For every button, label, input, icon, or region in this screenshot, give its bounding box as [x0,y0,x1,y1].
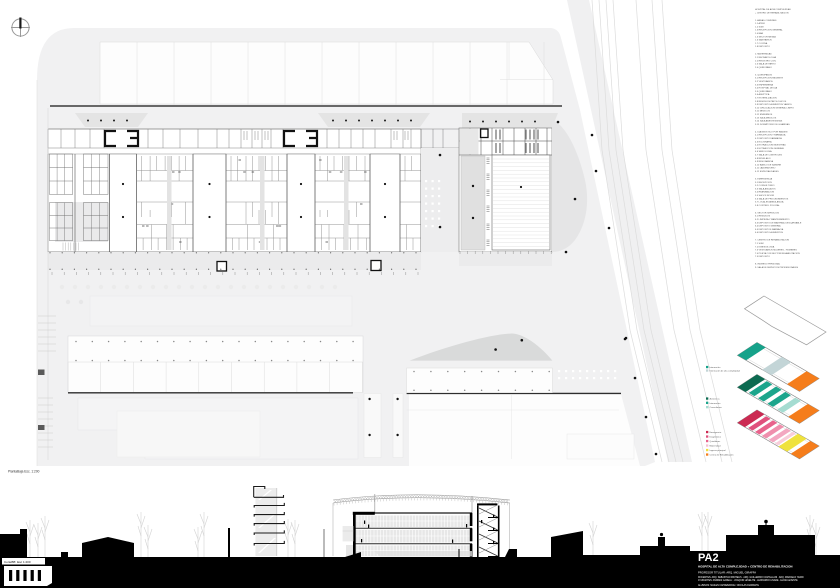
svg-text:Quirófanos: Quirófanos [710,440,722,443]
svg-text:4. DIAGNOSTICO POR IMAGEN: 4. DIAGNOSTICO POR IMAGEN [755,130,788,133]
svg-text:2. MATERNIDAD: 2. MATERNIDAD [755,53,772,56]
svg-text:4.1 RECEPCION Y FARMACIA: 4.1 RECEPCION Y FARMACIA [755,134,786,137]
svg-text:3.7 ESTERILIZACION: 3.7 ESTERILIZACION [755,97,777,100]
svg-text:6.6 DEPOSITO ALIMENTOS: 6.6 DEPOSITO ALIMENTOS [755,231,784,234]
svg-text:5.4 REANIMACION: 5.4 REANIMACION [755,191,775,194]
svg-text:8. INGRESO PERSONAL: 8. INGRESO PERSONAL [755,263,781,266]
svg-text:PROFESOR TITULAR: ARQ. MIGUEL: PROFESOR TITULAR: ARQ. MIGUEL GIRAFFA [698,571,756,575]
svg-text:Ingreso principal: Ingreso principal [710,449,727,452]
svg-text:Maternidad: Maternidad [710,445,722,448]
svg-text:3.6 ASEPTICA: 3.6 ASEPTICA [755,93,770,96]
svg-text:ALUMNOS: MAILEN CAPDEBARCE /: ALUMNOS: MAILEN CAPDEBARCE / NICOLAS DIA… [698,584,759,587]
svg-text:1.3 RECEPCION GENERAL: 1.3 RECEPCION GENERAL [755,29,783,32]
svg-text:2.1 NEONATOLOGIA: 2.1 NEONATOLOGIA [755,56,776,59]
svg-text:3.14 SALA ANESTESISTAS: 3.14 SALA ANESTESISTAS [755,120,783,123]
svg-text:1.1 ATRIO: 1.1 ATRIO [755,22,765,25]
svg-text:7.4 PILETA CON SECTOR REHABILI: 7.4 PILETA CON SECTOR REHABILITACION [755,252,800,255]
svg-text:3.8 RESIDUOS PATOLOGICOS: 3.8 RESIDUOS PATOLOGICOS [755,100,787,103]
svg-text:Centro de Rehabilitación: Centro de Rehabilitación [710,454,735,457]
svg-text:1.2 SUM: 1.2 SUM [755,26,764,28]
svg-text:3.5 QUIROFANO: 3.5 QUIROFANO [755,90,772,93]
svg-text:3.1 RECEPCION PACIENTE: 3.1 RECEPCION PACIENTE [755,77,784,80]
svg-text:1. AREAS COMUNES: 1. AREAS COMUNES [755,19,777,22]
svg-text:1.8 DEPOSITO: 1.8 DEPOSITO [755,46,770,48]
svg-text:Asistencia: Asistencia [710,398,721,401]
svg-text:PA2: PA2 [698,552,719,564]
svg-text:AYUDANTES: ANDRES GARELLI . JO: AYUDANTES: ANDRES GARELLI . JOAQUIN LEVE… [698,579,798,582]
svg-text:4.8 REVELADO: 4.8 REVELADO [755,157,771,160]
svg-text:7.3 VESTUARIOS MUJERES - HOMBR: 7.3 VESTUARIOS MUJERES - HOMBRES [755,249,797,252]
svg-text:4.2 DEPOSITO FARMACIA: 4.2 DEPOSITO FARMACIA [755,137,782,140]
svg-text:9. SALA DE SERVICIOS PROFESION: 9. SALA DE SERVICIOS PROFESIONALES [755,266,799,269]
svg-text:5.3 SALA AISLADOS: 5.3 SALA AISLADOS [755,187,776,190]
svg-text:4.9 RESONANCIA: 4.9 RESONANCIA [755,160,774,163]
svg-text:3.15 DORMITORIO DE GUARDIAS: 3.15 DORMITORIO DE GUARDIAS [755,123,790,126]
svg-text:CorteBB´ Esc 1:200: CorteBB´ Esc 1:200 [4,560,31,564]
svg-text:5. EMERGENCIA: 5. EMERGENCIA [755,178,773,181]
svg-text:4.7 SALA DE CONTROLES: 4.7 SALA DE CONTROLES [755,154,783,157]
svg-text:DOCENTES: ARQ. SEBASTIAN MICH: DOCENTES: ARQ. SEBASTIAN MICHELIS . ARQ.… [698,576,804,579]
svg-text:3.3 ENFERMERIA: 3.3 ENFERMERIA [755,83,774,86]
svg-text:3.13 SALA MEDICOS: 3.13 SALA MEDICOS [755,116,777,119]
svg-text:5.6 SALA DE PROCEDIMIENTOS: 5.6 SALA DE PROCEDIMIENTOS [755,197,789,200]
svg-text:3.4 HOSPITAL DE DIA: 3.4 HOSPITAL DE DIA [755,87,778,90]
svg-text:5.5 SHOCK ROOM: 5.5 SHOCK ROOM [755,195,774,197]
svg-text:3.11 MEDICOS: 3.11 MEDICOS [755,111,770,113]
svg-text:4.10 BANCO DE SANGRE: 4.10 BANCO DE SANGRE [755,163,782,166]
svg-text:5.8 CONTROL POLICIAL: 5.8 CONTROL POLICIAL [755,204,781,207]
svg-text:6. SECTOR SERVICIOS: 6. SECTOR SERVICIOS [755,212,780,214]
svg-text:1.4 BAR: 1.4 BAR [755,32,764,35]
svg-text:6.5 DEPOSITOS FARMACIA: 6.5 DEPOSITOS FARMACIA [755,228,784,231]
svg-text:1.7 COCINA: 1.7 COCINA [755,42,768,45]
svg-text:Consultorios: Consultorios [710,406,723,409]
svg-text:4.11 LABORATORIO: 4.11 LABORATORIO [755,167,776,170]
svg-text:3.9 DEPOSITO ALIMENTOS VARIOS: 3.9 DEPOSITO ALIMENTOS VARIOS [755,103,792,106]
svg-text:2.4 QUIROFANO: 2.4 QUIROFANO [755,66,772,69]
svg-text:7.1 SUM: 7.1 SUM [755,243,764,245]
svg-text:Internación de alta complejida: Internación de alta complejidad [710,370,741,373]
svg-text:6.2 LIMPIEZA Y MANTENIMIENTO: 6.2 LIMPIEZA Y MANTENIMIENTO [755,218,790,221]
svg-text:Diagnóstico: Diagnóstico [710,436,722,439]
svg-text:Internación: Internación [710,402,722,405]
svg-text:4.3 ECOGRAFIA: 4.3 ECOGRAFIA [755,140,772,143]
svg-text:3. QUIROFANOS: 3. QUIROFANOS [755,73,773,76]
svg-text:Internación: Internación [710,366,722,369]
svg-text:3.12 ENFERMOS: 3.12 ENFERMOS [755,114,773,116]
svg-text:2.2 REGISTRO CIVIL: 2.2 REGISTRO CIVIL [755,60,777,62]
svg-text:5.2 CONSULTORIO: 5.2 CONSULTORIO [755,185,775,187]
svg-text:1.5 SECTOR MESAS: 1.5 SECTOR MESAS [755,35,777,38]
svg-text:4.6 SEROLOGIA: 4.6 SEROLOGIA [755,150,772,153]
svg-text:PlantaBaja Esc. 1:200: PlantaBaja Esc. 1:200 [8,470,40,474]
svg-text:2.3 SALA DE PARTO: 2.3 SALA DE PARTO [755,63,776,66]
svg-text:7.5 DEPOSITO: 7.5 DEPOSITO [755,256,770,258]
svg-text:6.1 RESIDUOS: 6.1 RESIDUOS [755,216,771,218]
svg-text:3.10 CIRCULACION GENERAL LIMPI: 3.10 CIRCULACION GENERAL LIMPIO [755,106,794,109]
svg-text:7. CENTRO DE REHABILITACION: 7. CENTRO DE REHABILITACION [755,239,789,242]
svg-text:7.2 KINESIOLOGIA: 7.2 KINESIOLOGIA [755,245,775,248]
svg-text:5.7 LOCALES AMBULANCIA: 5.7 LOCALES AMBULANCIA [755,201,784,204]
svg-text:1.6 SANITARIOS: 1.6 SANITARIOS [755,39,772,42]
svg-text:5.1 RECEPCION: 5.1 RECEPCION [755,182,772,184]
svg-text:Emergencia: Emergencia [710,431,722,434]
svg-text:3.2 VESTUARIOS: 3.2 VESTUARIOS [755,80,773,83]
svg-text:4.12 ESPECIALIDADES: 4.12 ESPECIALIDADES [755,170,779,173]
svg-text:6.3 DEPOSITO DE MATERIAL DESCA: 6.3 DEPOSITO DE MATERIAL DESCARTABLE [755,221,802,224]
svg-text:6.4 DEPOSITO GENERAL: 6.4 DEPOSITO GENERAL [755,225,782,228]
svg-text:+ CENTRO DE REHABILITACION: + CENTRO DE REHABILITACION [755,11,789,14]
svg-text:HOSPITAL DE ALTA COMPLEJIDAD: HOSPITAL DE ALTA COMPLEJIDAD [755,8,791,11]
svg-text:4.4 EXTRACCION MUESTRAS: 4.4 EXTRACCION MUESTRAS [755,144,786,147]
svg-text:HOSPITAL DE ALTA COMPLEJIDAD +: HOSPITAL DE ALTA COMPLEJIDAD + CENTRO DE… [698,565,793,569]
svg-text:4.5 EXTRACCION GENERAL: 4.5 EXTRACCION GENERAL [755,147,785,150]
